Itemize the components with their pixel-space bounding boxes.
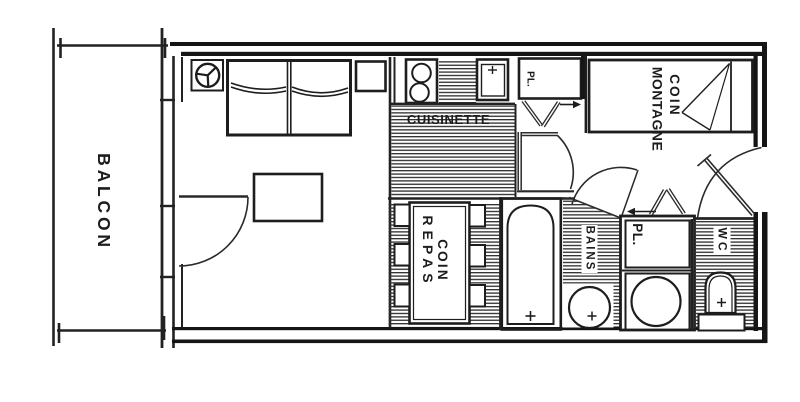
svg-text:CUISINETTE: CUISINETTE — [407, 112, 490, 127]
svg-text:WC: WC — [716, 228, 730, 254]
svg-text:PL.: PL. — [525, 71, 536, 87]
svg-text:PL.: PL. — [630, 223, 645, 246]
svg-text:MONTAGNE: MONTAGNE — [650, 67, 666, 152]
svg-text:BAINS: BAINS — [584, 226, 596, 272]
svg-text:COIN: COIN — [435, 239, 450, 282]
svg-text:BALCON: BALCON — [94, 153, 114, 251]
svg-text:REPAS: REPAS — [420, 215, 436, 287]
svg-text:COIN: COIN — [667, 74, 682, 117]
